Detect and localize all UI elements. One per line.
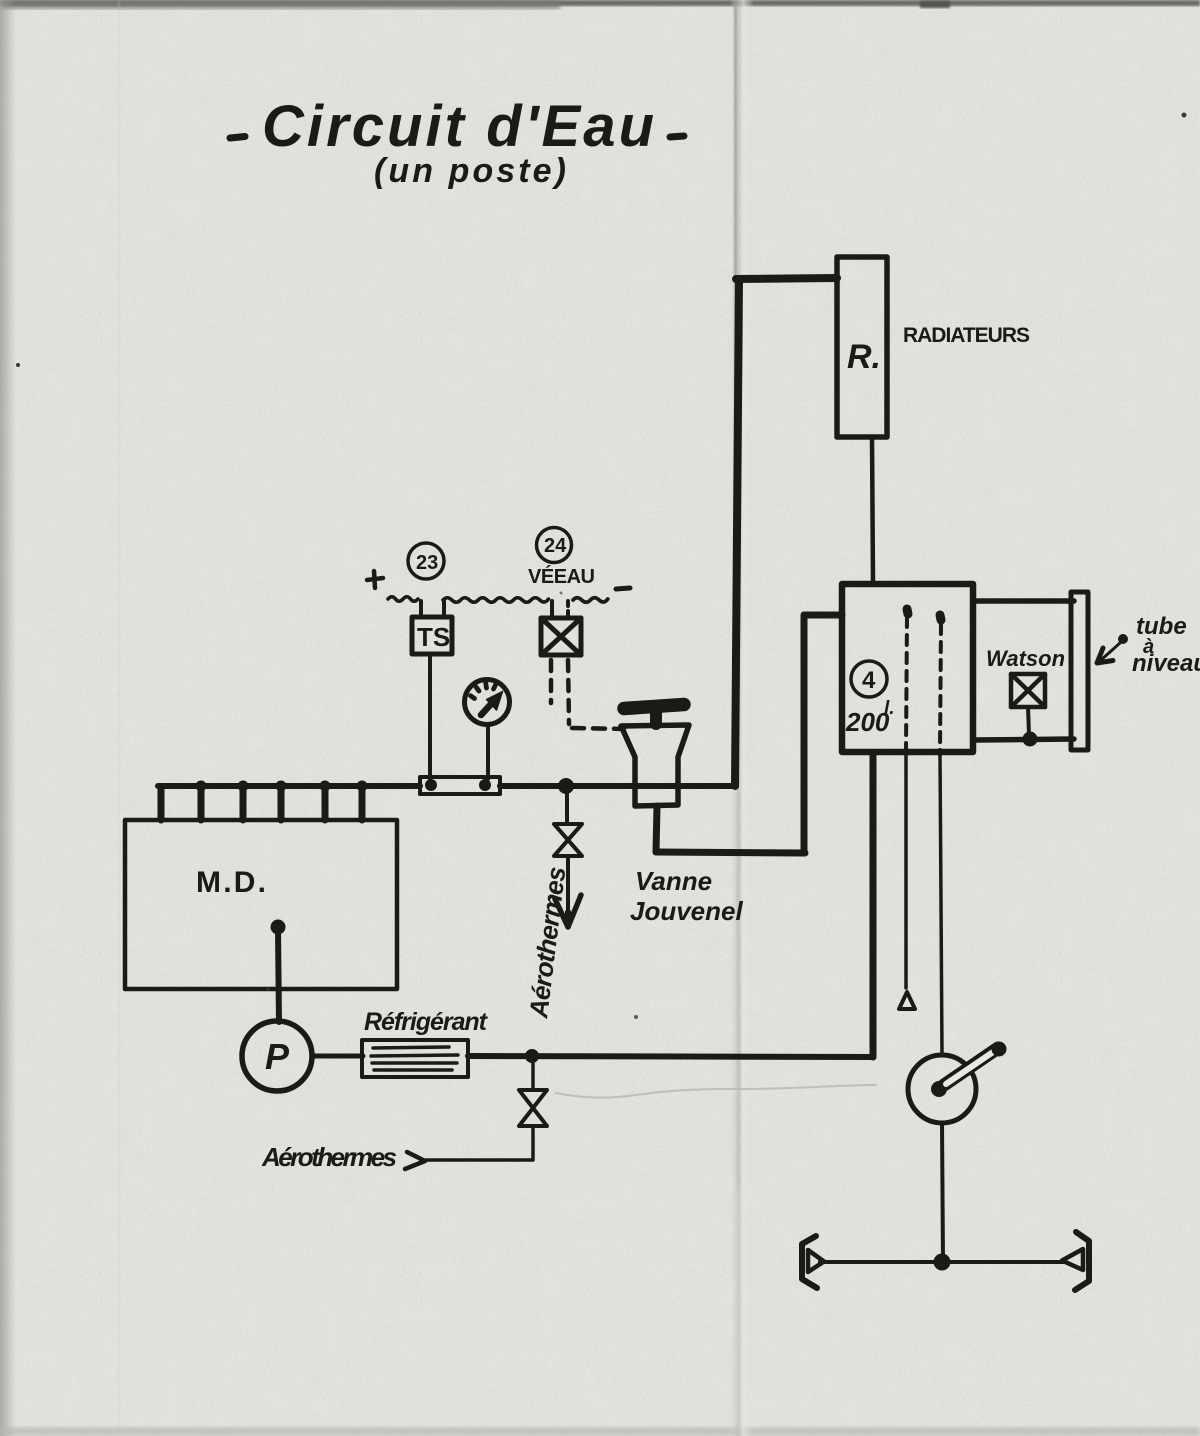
svg-text:Vanne: Vanne: [635, 866, 712, 896]
svg-text:VÉEAU: VÉEAU: [528, 565, 595, 588]
svg-text:24: 24: [544, 535, 567, 557]
svg-text:Circuit d'Eau: Circuit d'Eau: [262, 94, 654, 159]
svg-text:l.: l.: [884, 698, 895, 719]
svg-text:RADIATEURS: RADIATEURS: [903, 324, 1030, 347]
svg-text:Réfrigérant: Réfrigérant: [364, 1008, 489, 1036]
svg-text:Jouvenel: Jouvenel: [630, 896, 743, 926]
svg-text:R.: R.: [847, 338, 881, 376]
svg-text:niveau: niveau: [1132, 650, 1200, 677]
svg-text:Aérothermes: Aérothermes: [261, 1142, 397, 1172]
svg-text:TS: TS: [417, 622, 450, 652]
svg-text:Watson: Watson: [986, 646, 1065, 671]
svg-text:4: 4: [862, 667, 876, 694]
svg-text:P: P: [265, 1036, 290, 1077]
svg-text:23: 23: [416, 552, 438, 574]
